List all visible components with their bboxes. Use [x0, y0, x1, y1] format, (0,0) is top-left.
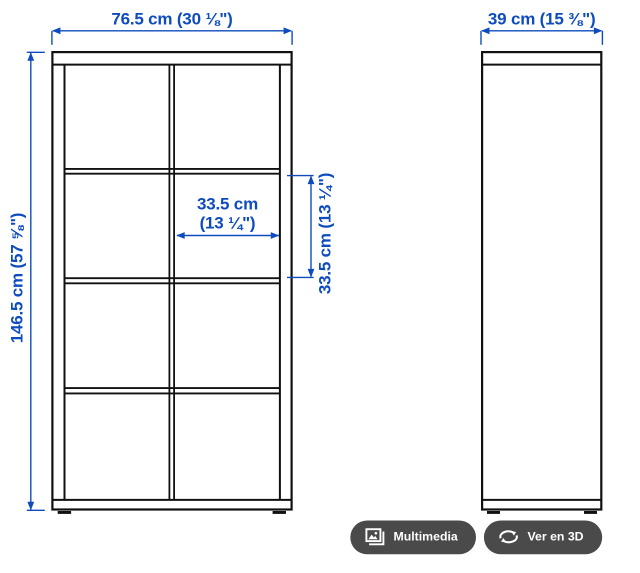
svg-text:(13 ¼"): (13 ¼"): [200, 214, 256, 233]
svg-text:33.5 cm (13 ¼"): 33.5 cm (13 ¼"): [316, 173, 335, 294]
svg-text:146.5 cm (57 ⅝"): 146.5 cm (57 ⅝"): [8, 213, 27, 344]
svg-text:76.5 cm (30 ⅛"): 76.5 cm (30 ⅛"): [111, 10, 232, 29]
svg-text:Ver en 3D: Ver en 3D: [528, 530, 584, 544]
svg-text:39 cm (15 ⅜"): 39 cm (15 ⅜"): [488, 10, 596, 29]
svg-text:33.5 cm: 33.5 cm: [197, 195, 258, 214]
svg-text:Multimedia: Multimedia: [394, 530, 458, 544]
